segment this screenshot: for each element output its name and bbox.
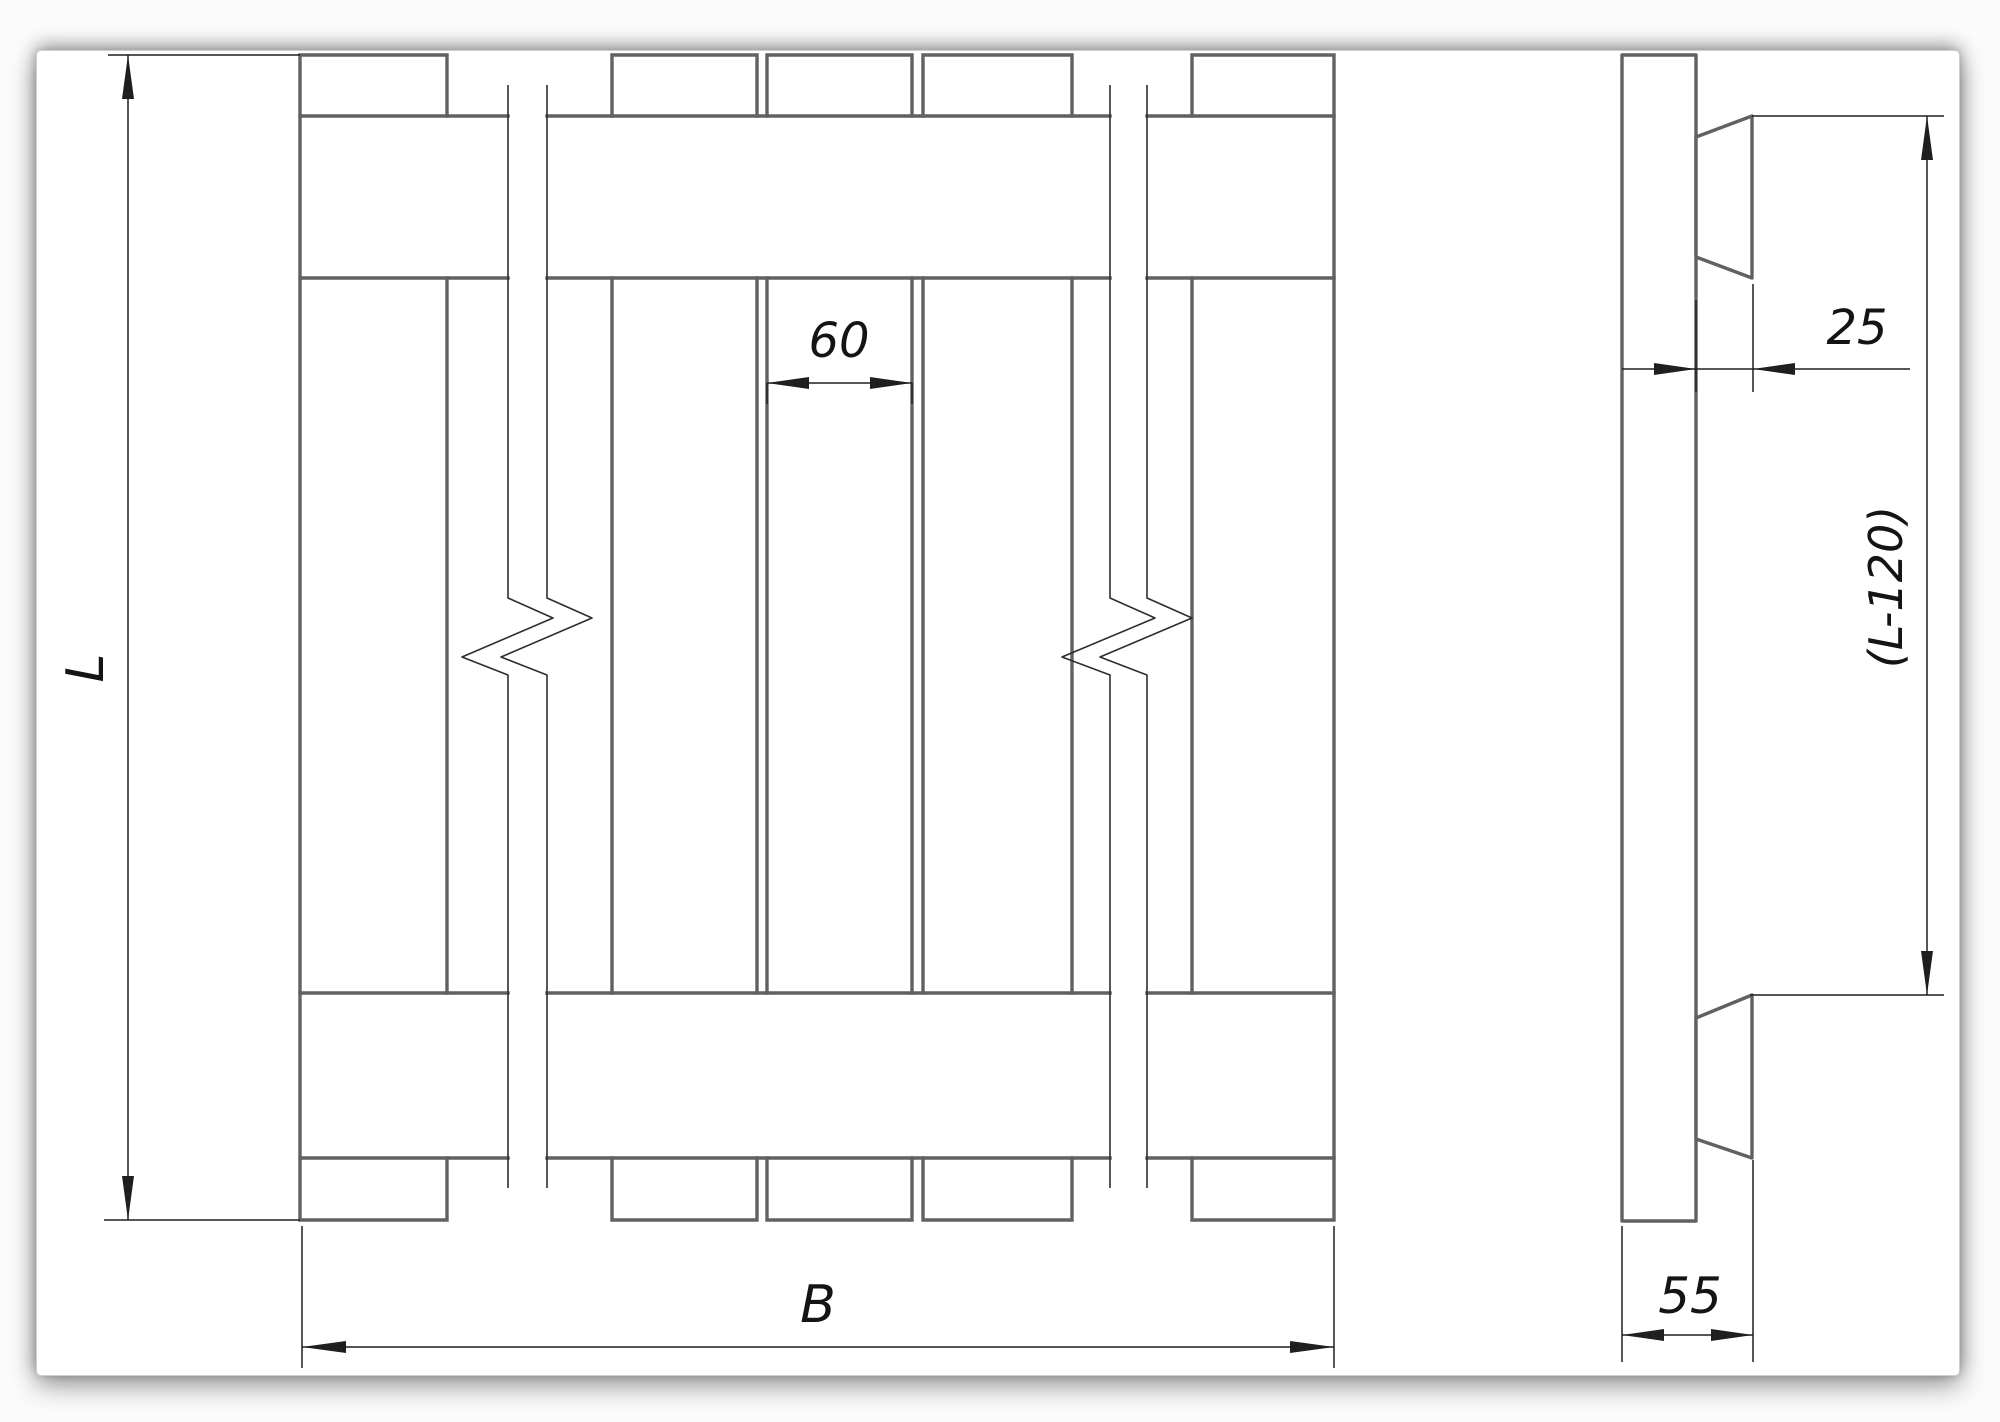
dimension-overall-width: B bbox=[302, 1226, 1334, 1368]
side-top-cleat bbox=[1696, 116, 1752, 278]
dimension-board-width: 60 bbox=[767, 313, 912, 404]
side-board bbox=[1622, 55, 1696, 1221]
break-lines bbox=[462, 85, 1192, 1188]
front-board-edges bbox=[300, 55, 1334, 1220]
arrow-down-icon bbox=[1921, 951, 1933, 995]
label-cleat-spacing: (L-120) bbox=[1859, 506, 1913, 668]
arrow-down-icon bbox=[122, 1176, 134, 1220]
arrow-up-icon bbox=[122, 55, 134, 99]
technical-drawing: L B 60 25 (L-120) 55 bbox=[0, 0, 2000, 1422]
front-cleat-band-edges bbox=[300, 116, 1334, 1158]
label-overall-length: L bbox=[56, 654, 116, 683]
label-overall-width: B bbox=[800, 1275, 836, 1335]
dimension-lines bbox=[767, 383, 912, 404]
dimension-cleat-spacing: (L-120) bbox=[1750, 116, 1944, 995]
dimension-lines bbox=[104, 55, 300, 1220]
arrow-left-icon bbox=[1622, 1329, 1664, 1341]
arrow-right-icon bbox=[1711, 1329, 1753, 1341]
dimension-lines bbox=[1750, 116, 1944, 995]
screenshot-root: { "drawing": { "views": { "front_view": … bbox=[0, 0, 2000, 1422]
label-board-width: 60 bbox=[808, 313, 869, 369]
arrow-left-icon bbox=[767, 377, 809, 389]
dimension-overall-length: L bbox=[56, 55, 300, 1220]
side-bottom-cleat bbox=[1696, 995, 1752, 1158]
arrow-right-icon bbox=[870, 377, 912, 389]
arrow-up-icon bbox=[1921, 116, 1933, 160]
side-view bbox=[1622, 55, 1752, 1221]
label-cleat-thickness: 25 bbox=[1826, 300, 1887, 356]
label-panel-thickness: 55 bbox=[1658, 1267, 1722, 1325]
arrow-left-icon bbox=[302, 1341, 346, 1353]
arrow-left-icon bbox=[1753, 363, 1795, 375]
arrow-right-icon bbox=[1290, 1341, 1334, 1353]
front-view bbox=[300, 55, 1334, 1220]
